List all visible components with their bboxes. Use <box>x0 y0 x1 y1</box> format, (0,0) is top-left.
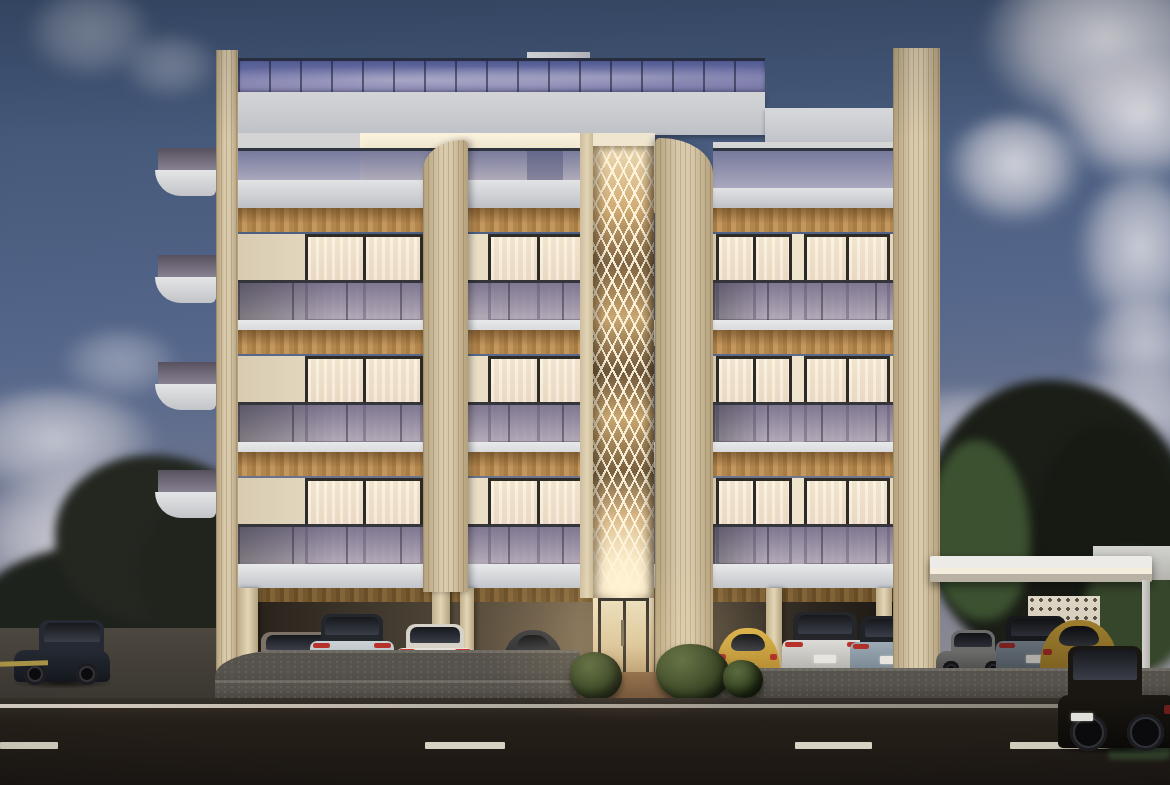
car-side-glass <box>1073 649 1137 680</box>
car-taillight <box>1164 705 1170 714</box>
architectural-render <box>0 0 1170 785</box>
street-cars <box>0 0 1170 785</box>
car-plate <box>1071 713 1093 721</box>
car-mini-street-right <box>1058 646 1170 748</box>
car-wheel <box>1127 714 1164 751</box>
